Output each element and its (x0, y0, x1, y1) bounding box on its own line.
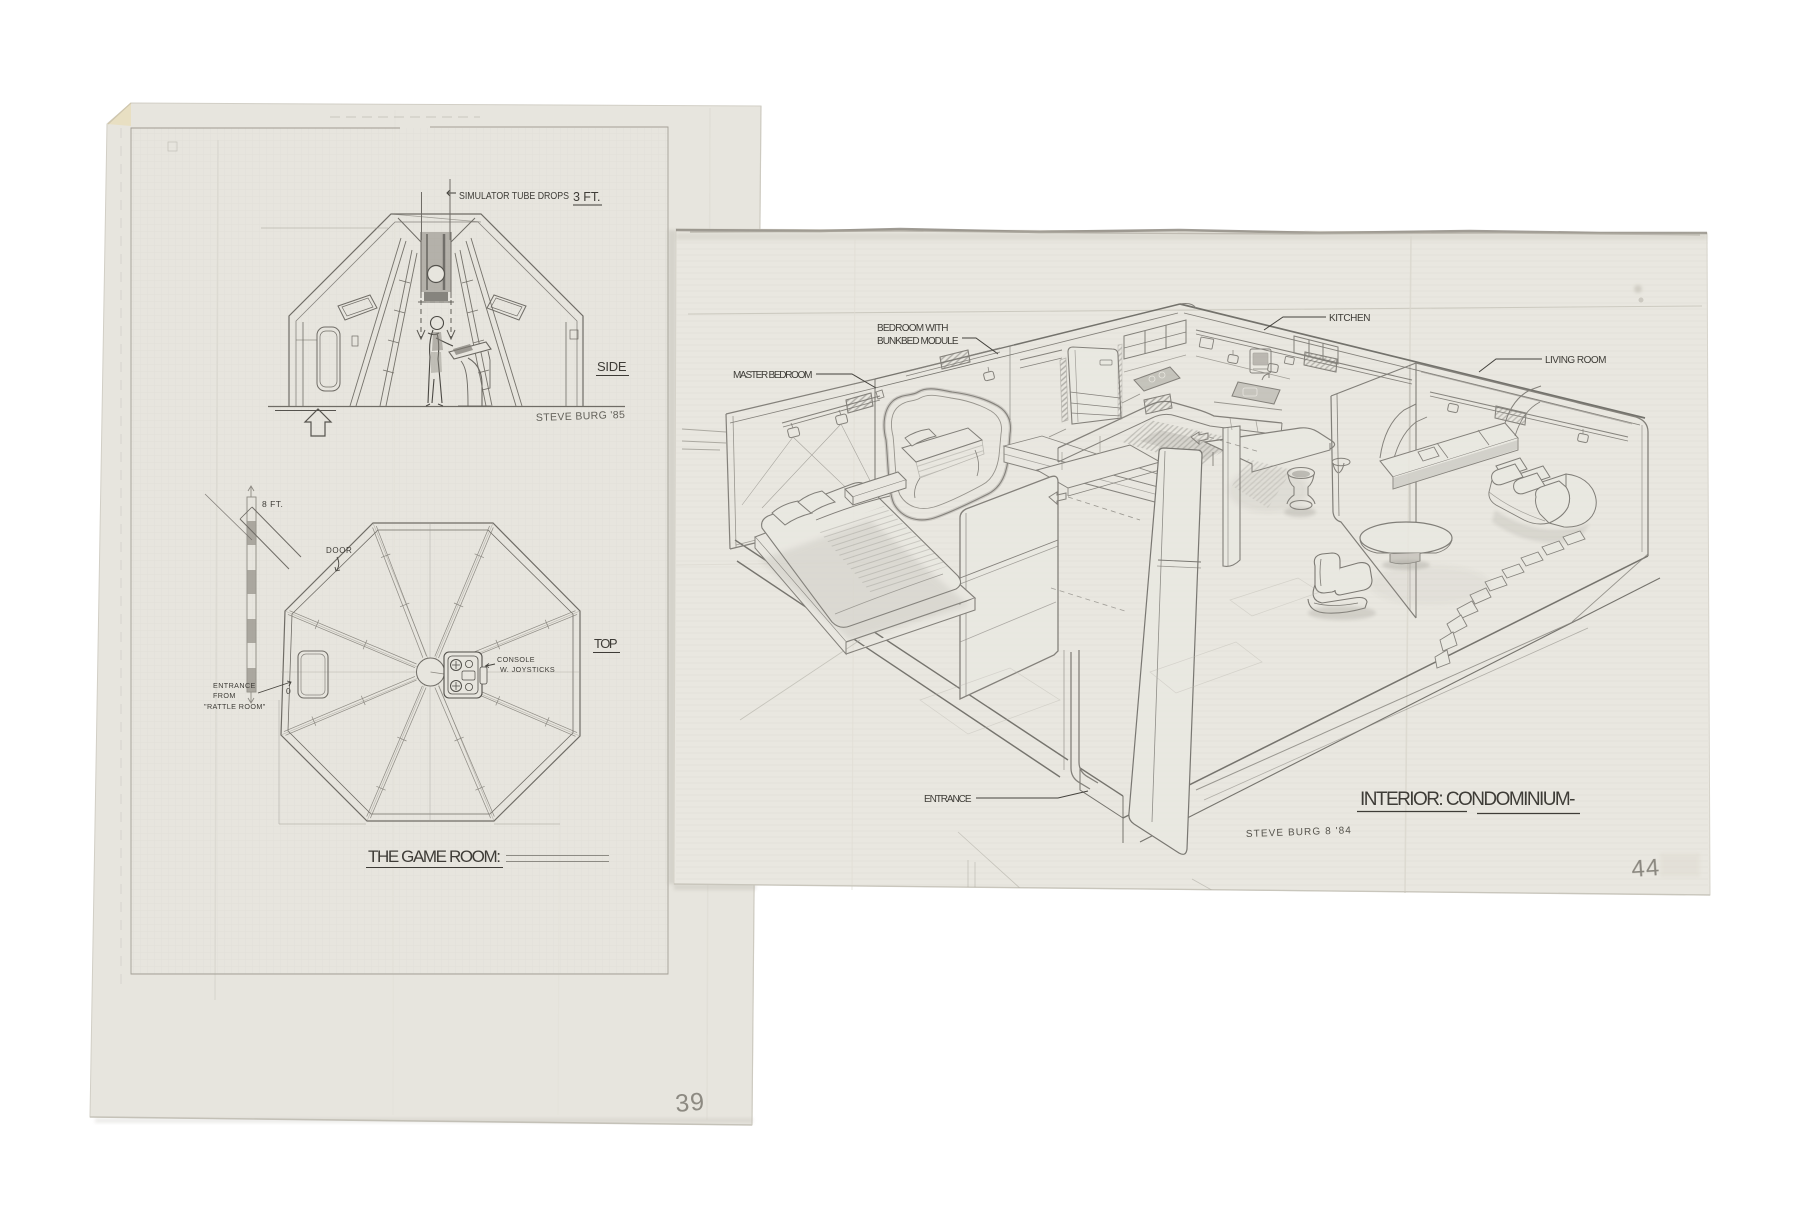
svg-text:W. JOYSTICKS: W. JOYSTICKS (500, 665, 555, 674)
svg-text:ENTRANCE: ENTRANCE (213, 681, 256, 690)
svg-text:SIMULATOR TUBE DROPS: SIMULATOR TUBE DROPS (459, 190, 569, 202)
svg-text:44: 44 (1631, 854, 1662, 883)
svg-text:SIDE: SIDE (597, 359, 628, 374)
svg-text:LIVING ROOM: LIVING ROOM (1545, 355, 1607, 366)
svg-text:KITCHEN: KITCHEN (1329, 313, 1371, 324)
svg-text:"RATTLE ROOM": "RATTLE ROOM" (204, 702, 266, 711)
svg-text:BUNKBED MODULE: BUNKBED MODULE (877, 336, 959, 347)
svg-text:0: 0 (286, 686, 291, 696)
svg-text:3 FT.: 3 FT. (573, 190, 601, 204)
svg-text:BEDROOM WITH: BEDROOM WITH (877, 323, 949, 334)
svg-text:8 FT.: 8 FT. (262, 499, 283, 509)
svg-text:FROM: FROM (213, 691, 236, 700)
svg-text:TOP: TOP (594, 636, 619, 651)
svg-text:INTERIOR: CONDOMINIUM-: INTERIOR: CONDOMINIUM- (1360, 789, 1576, 810)
svg-text:39: 39 (674, 1087, 706, 1117)
svg-text:MASTER BEDROOM: MASTER BEDROOM (733, 370, 813, 381)
svg-text:THE GAME ROOM:: THE GAME ROOM: (368, 847, 502, 866)
svg-text:DOOR: DOOR (326, 546, 352, 555)
svg-text:ENTRANCE: ENTRANCE (924, 794, 972, 805)
svg-text:CONSOLE: CONSOLE (497, 655, 535, 664)
